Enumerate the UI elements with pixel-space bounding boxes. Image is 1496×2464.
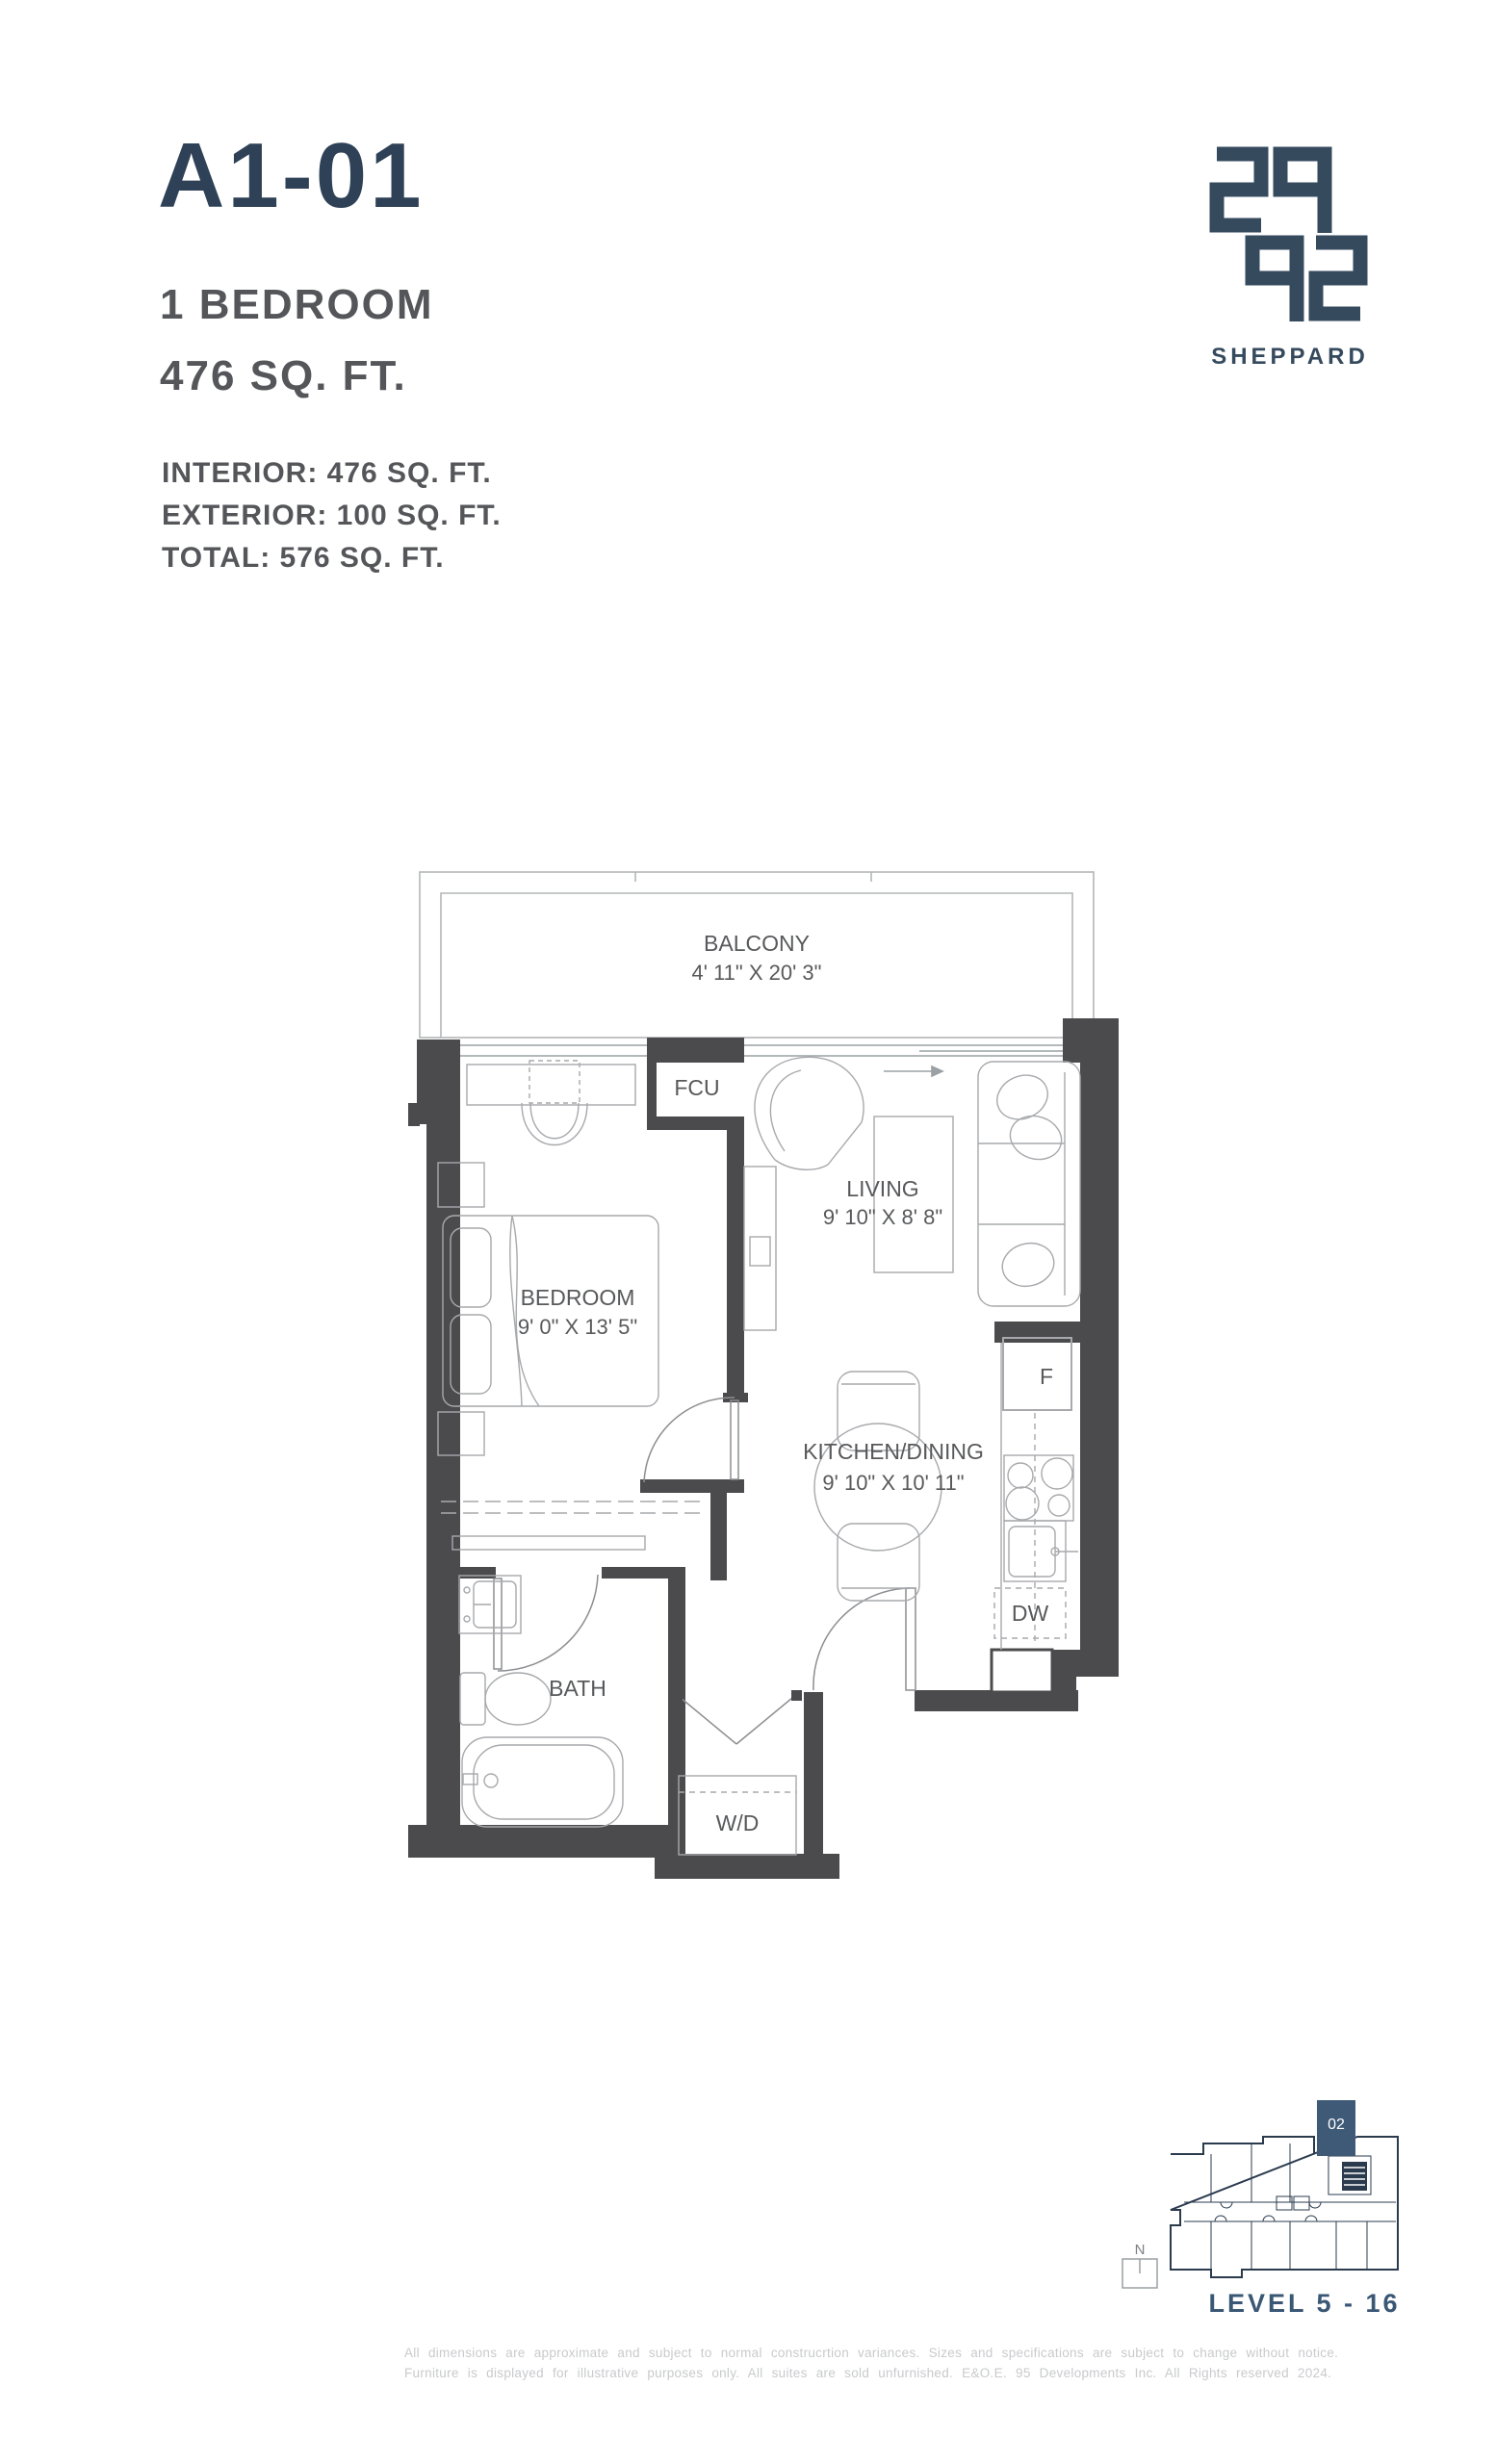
fridge-label: F — [1040, 1364, 1053, 1389]
total-area: TOTAL: 576 SQ. FT. — [162, 537, 502, 579]
balcony-dims: 4' 11" X 20' 3" — [692, 961, 822, 985]
area-stats: INTERIOR: 476 SQ. FT. EXTERIOR: 100 SQ. … — [162, 452, 502, 579]
dishwasher-label: DW — [1012, 1601, 1049, 1626]
logo-2992-icon — [1203, 142, 1377, 331]
window-lines — [460, 1045, 1080, 1056]
building-logo: SHEPPARD — [1203, 142, 1377, 371]
key-plan: 02 N — [1112, 2089, 1430, 2291]
disclaimer-line-1: All dimensions are approximate and subje… — [404, 2343, 1479, 2363]
fcu-label: FCU — [674, 1075, 719, 1100]
unit-type: 1 BEDROOM — [160, 281, 433, 329]
north-label: N — [1135, 2242, 1146, 2258]
exterior-area: EXTERIOR: 100 SQ. FT. — [162, 495, 502, 537]
living-dims: 9' 10" X 8' 8" — [823, 1205, 942, 1229]
kitchen-dims: 9' 10" X 10' 11" — [822, 1471, 964, 1495]
balcony-label: BALCONY — [704, 931, 810, 956]
bedroom-label: BEDROOM — [521, 1285, 635, 1310]
bath-label: BATH — [549, 1676, 606, 1701]
bedroom-dims: 9' 0" X 13' 5" — [518, 1315, 637, 1339]
unit-area: 476 SQ. FT. — [160, 352, 407, 400]
logo-wordmark: SHEPPARD — [1203, 344, 1377, 371]
kitchen-label: KITCHEN/DINING — [803, 1439, 984, 1464]
disclaimer: All dimensions are approximate and subje… — [404, 2343, 1479, 2383]
floor-plan: BALCONY 4' 11" X 20' 3" FCU LIVING 9' 10… — [404, 861, 1126, 1886]
keyplan-unit-number: 02 — [1328, 2117, 1345, 2133]
entry-closet — [992, 1650, 1052, 1692]
disclaimer-line-2: Furniture is displayed for illustrative … — [404, 2363, 1479, 2383]
unit-code-title: A1-01 — [158, 123, 424, 229]
living-label: LIVING — [846, 1176, 918, 1201]
washer-dryer-label: W/D — [716, 1810, 760, 1835]
interior-area: INTERIOR: 476 SQ. FT. — [162, 452, 502, 495]
level-range-label: LEVEL 5 - 16 — [1170, 2289, 1439, 2319]
keyplan-stairs — [1342, 2162, 1367, 2191]
floorplan-sheet: A1-01 1 BEDROOM 476 SQ. FT. INTERIOR: 47… — [0, 0, 1496, 2464]
sliding-door-arrow-icon — [884, 1066, 942, 1076]
bath-fixtures — [459, 1576, 623, 1827]
keyplan-unit-highlight: 02 — [1317, 2100, 1355, 2156]
walls — [408, 1018, 1119, 1879]
north-indicator-icon: N — [1122, 2242, 1157, 2288]
